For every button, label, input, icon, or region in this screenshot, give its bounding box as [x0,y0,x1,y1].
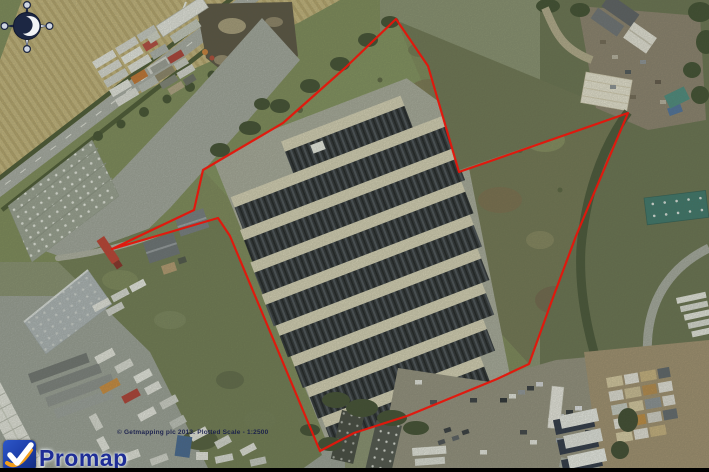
bottom-bar [0,468,709,472]
photo-grain [0,0,709,472]
map-viewport[interactable]: Promap © Getmapping plc 2013. Plotted Sc… [0,0,709,472]
aerial-photo [0,0,709,472]
logo-text: Promap [39,447,128,470]
logo-tile [3,440,36,471]
copyright-text: © Getmapping plc 2013. Plotted Scale - 1… [117,429,268,436]
compass-rose-icon [0,0,54,54]
promap-logo: Promap [3,440,128,471]
